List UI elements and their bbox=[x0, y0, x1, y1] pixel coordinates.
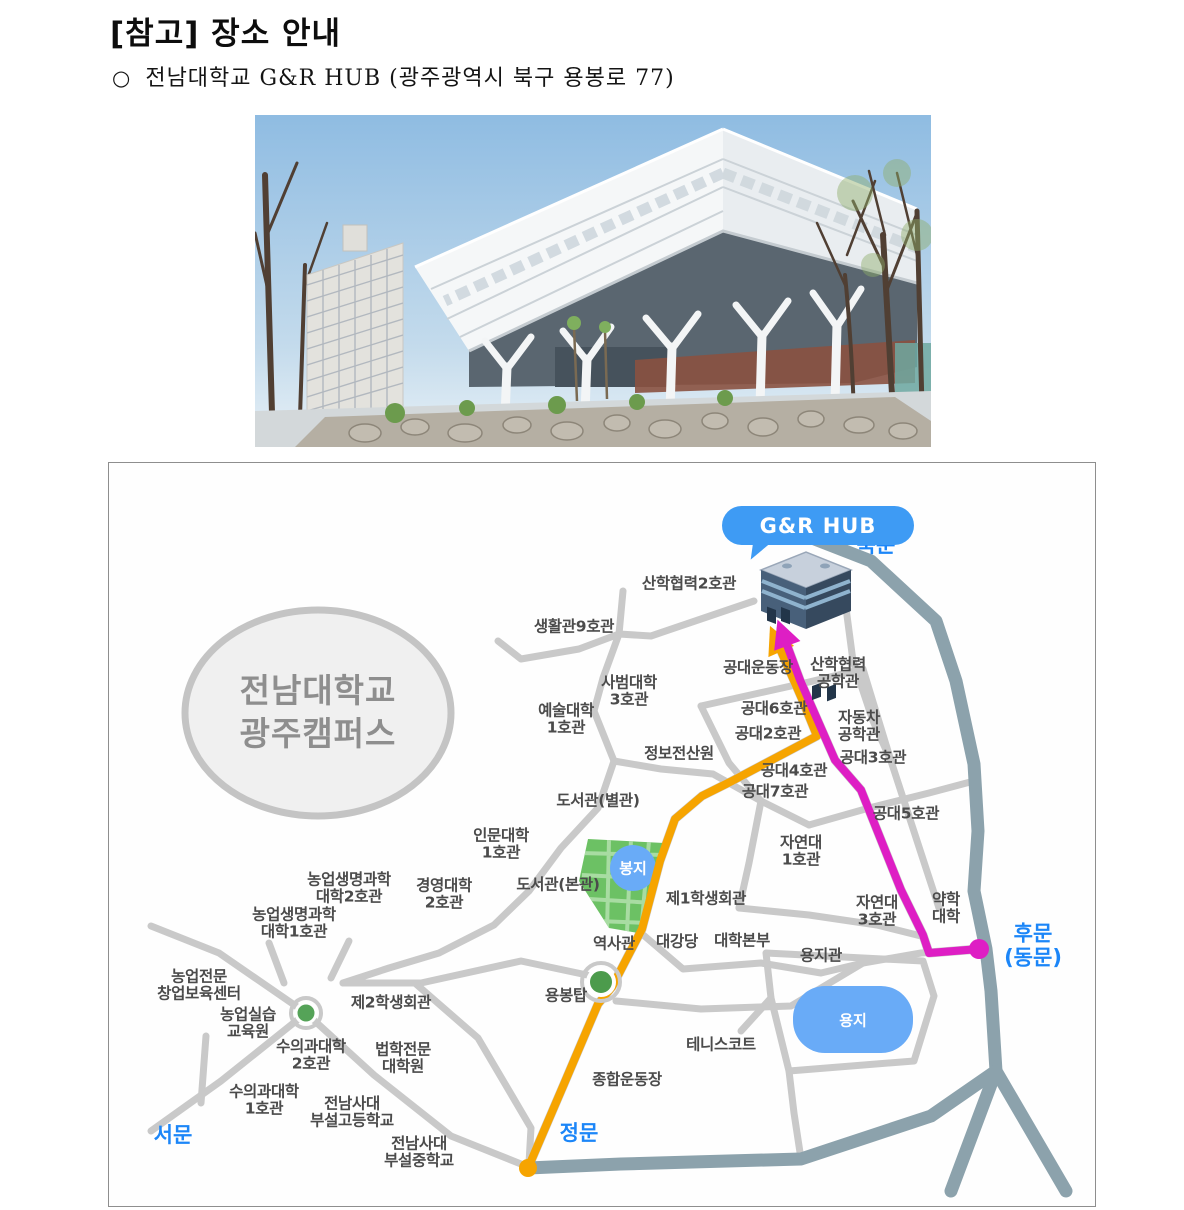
route-main-start-dot bbox=[519, 1159, 537, 1177]
page-title: [참고] 장소 안내 bbox=[110, 8, 341, 53]
route-back-start-dot bbox=[969, 939, 989, 959]
location-line: ○전남대학교 G&R HUB (광주광역시 북구 용봉로 77) bbox=[112, 60, 675, 92]
west-rotary-circle bbox=[291, 998, 321, 1028]
yongbong-tower-circle bbox=[582, 963, 620, 1001]
hub-building-icon bbox=[761, 552, 851, 701]
hub-bubble: G&R HUB bbox=[722, 506, 914, 545]
campus-map-graphic bbox=[109, 463, 1095, 1206]
campus-circle bbox=[185, 610, 451, 816]
location-text: 전남대학교 G&R HUB (광주광역시 북구 용봉로 77) bbox=[145, 66, 674, 91]
building-photo bbox=[255, 115, 931, 447]
hub-bubble-tail bbox=[751, 540, 772, 562]
hub-bubble-label: G&R HUB bbox=[760, 514, 877, 538]
document-page: [참고] 장소 안내 ○전남대학교 G&R HUB (광주광역시 북구 용봉로 … bbox=[0, 0, 1184, 1210]
yongji-pond bbox=[793, 986, 913, 1053]
route-from-main-gate bbox=[528, 635, 817, 1168]
building-photo-graphic bbox=[255, 115, 931, 447]
bongji-pond bbox=[610, 845, 656, 891]
bullet-circle-icon: ○ bbox=[112, 66, 131, 90]
campus-map: 전남대학교 광주캠퍼스 산학협력2호관생활관9호관공대운동장산학협력 공학관사범… bbox=[108, 462, 1096, 1207]
